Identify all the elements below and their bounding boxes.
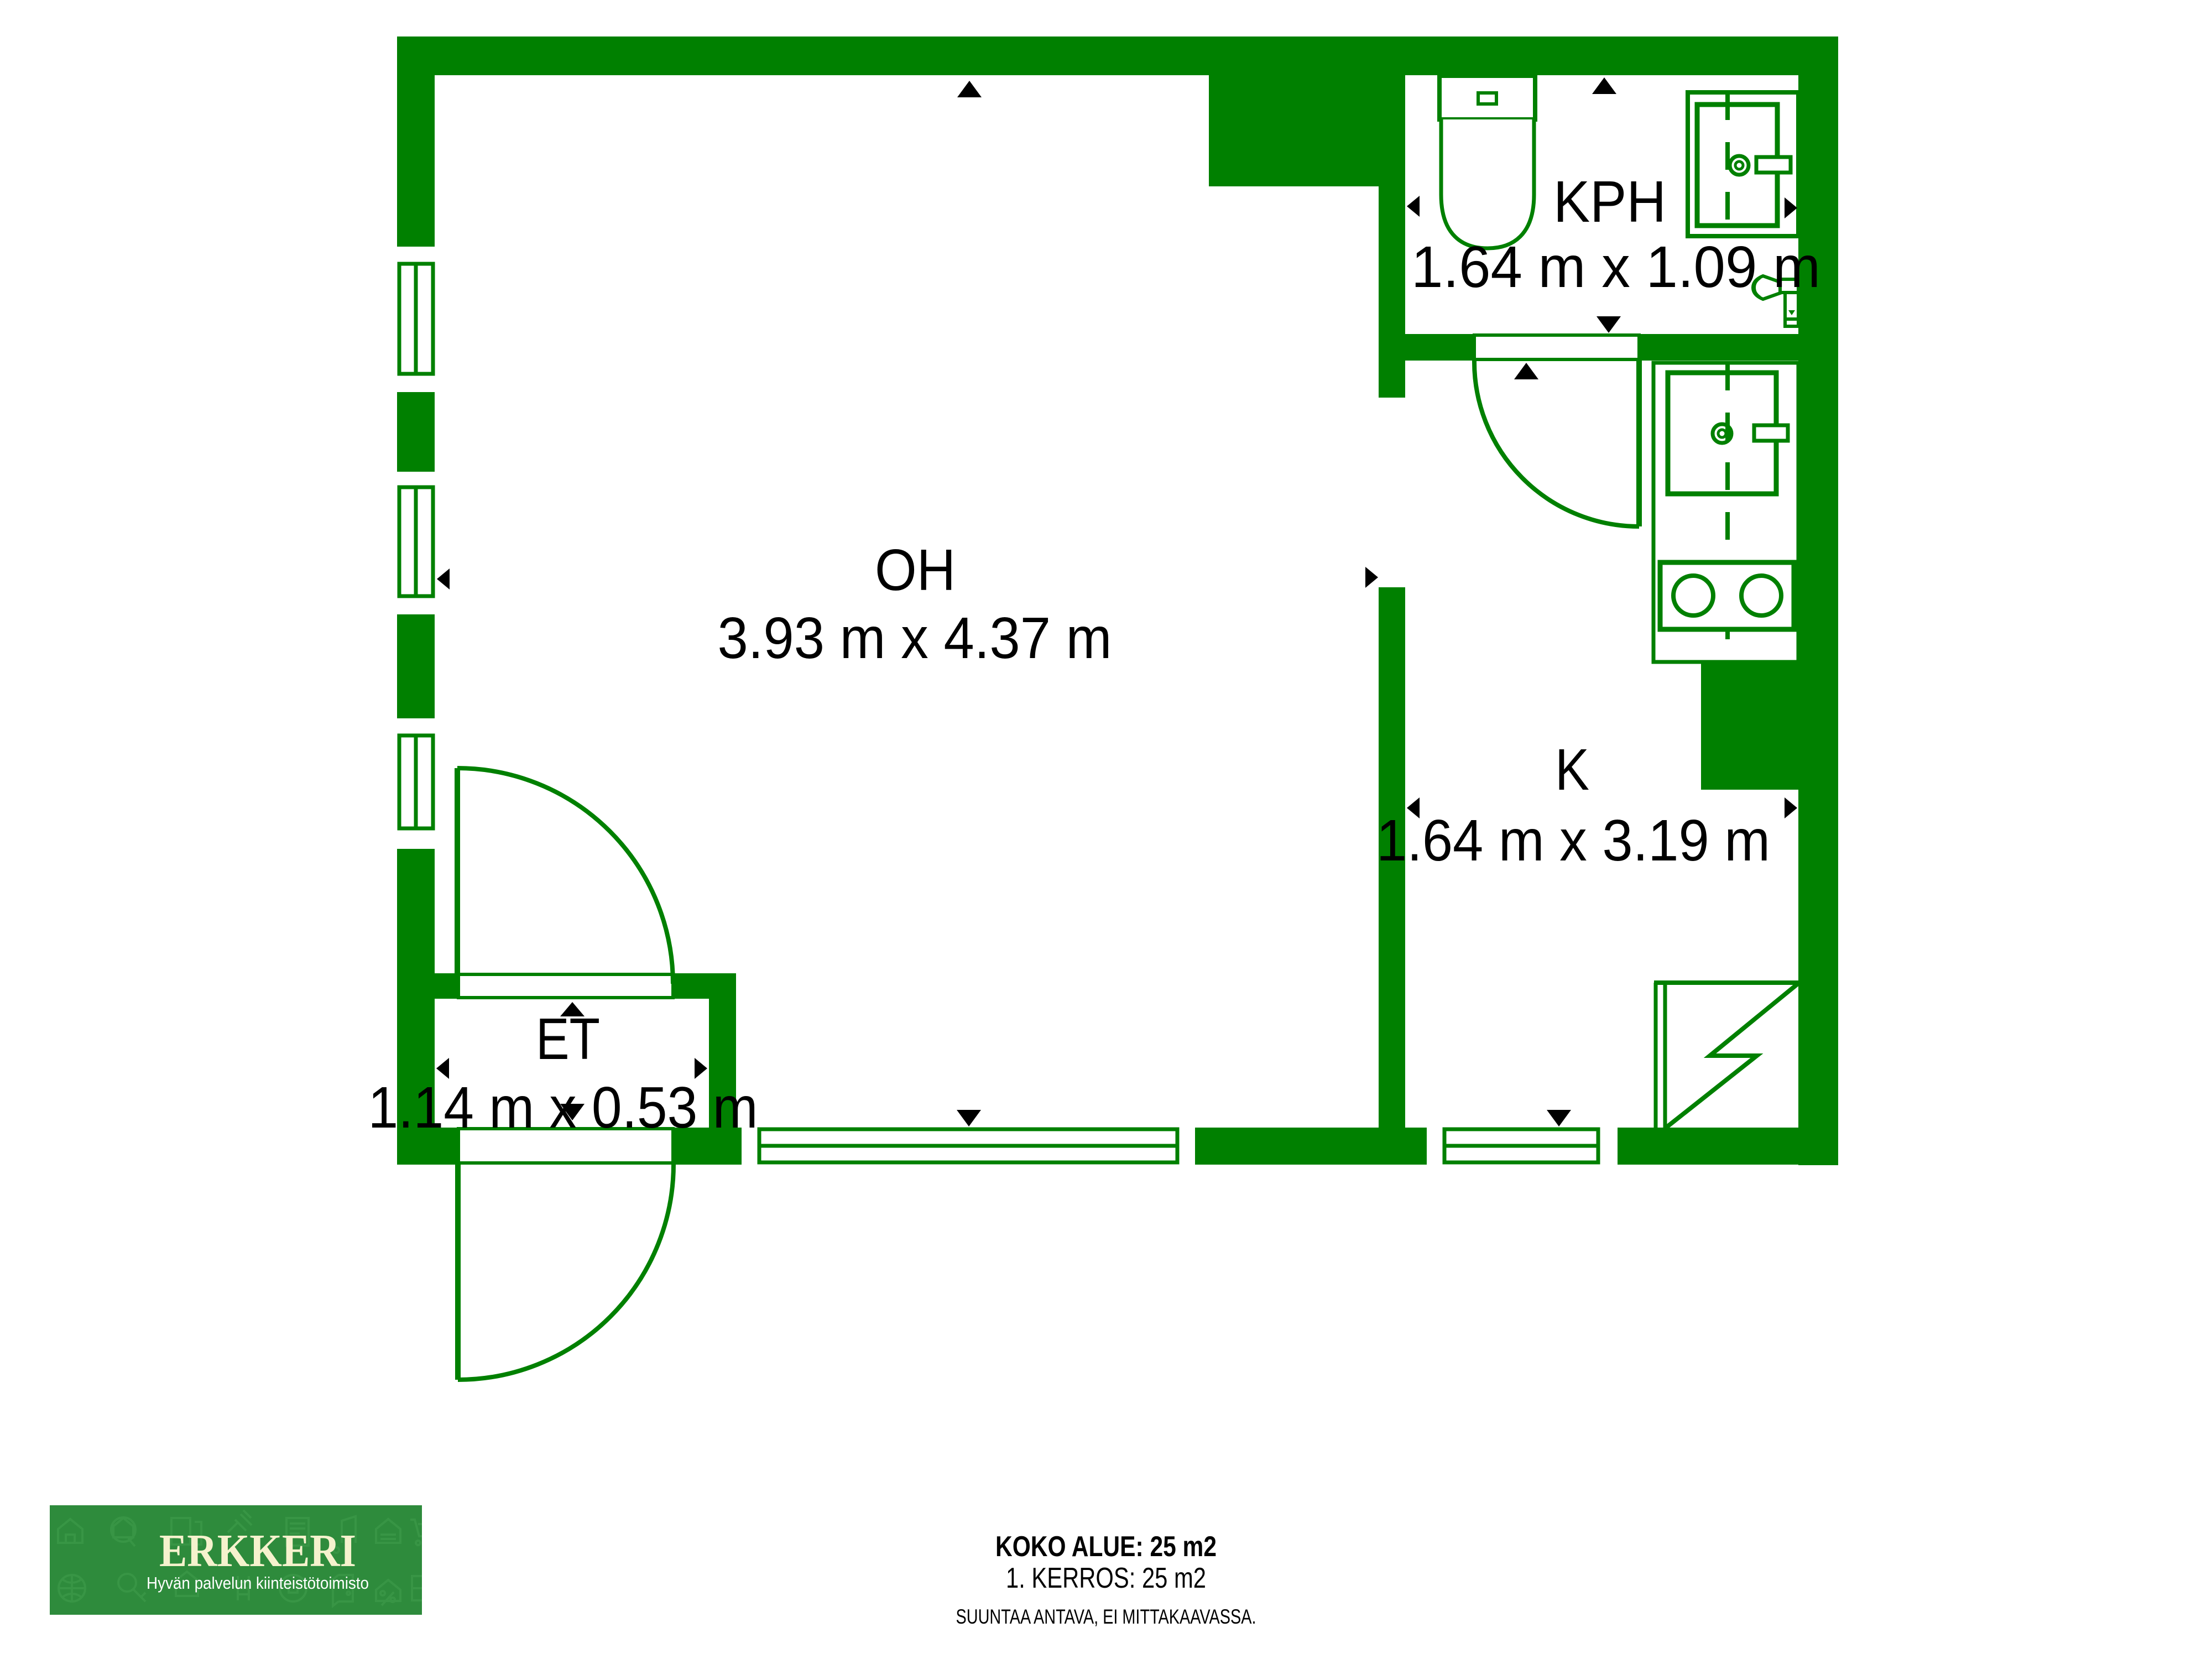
svg-text:ET: ET <box>536 1006 600 1072</box>
svg-text:1.14 m x 0.53 m: 1.14 m x 0.53 m <box>368 1075 758 1140</box>
svg-text:1.64 m x 1.09 m: 1.64 m x 1.09 m <box>1411 234 1820 300</box>
svg-text:KOKO ALUE: 25 m2: KOKO ALUE: 25 m2 <box>995 1531 1217 1563</box>
svg-text:OH: OH <box>875 538 956 603</box>
svg-text:SUUNTAA ANTAVA, EI MITTAKAAVAS: SUUNTAA ANTAVA, EI MITTAKAAVASSA. <box>956 1605 1256 1628</box>
svg-text:ERKKERI: ERKKERI <box>159 1525 356 1577</box>
svg-text:K: K <box>1555 737 1589 802</box>
svg-text:1.64 m x 3.19 m: 1.64 m x 3.19 m <box>1376 808 1770 873</box>
svg-text:Hyvän palvelun kiinteistötoimi: Hyvän palvelun kiinteistötoimisto <box>147 1573 369 1593</box>
svg-text:KPH: KPH <box>1553 169 1666 234</box>
svg-text:1. KERROS: 25 m2: 1. KERROS: 25 m2 <box>1006 1562 1206 1594</box>
svg-text:3.93 m x 4.37 m: 3.93 m x 4.37 m <box>718 606 1112 671</box>
